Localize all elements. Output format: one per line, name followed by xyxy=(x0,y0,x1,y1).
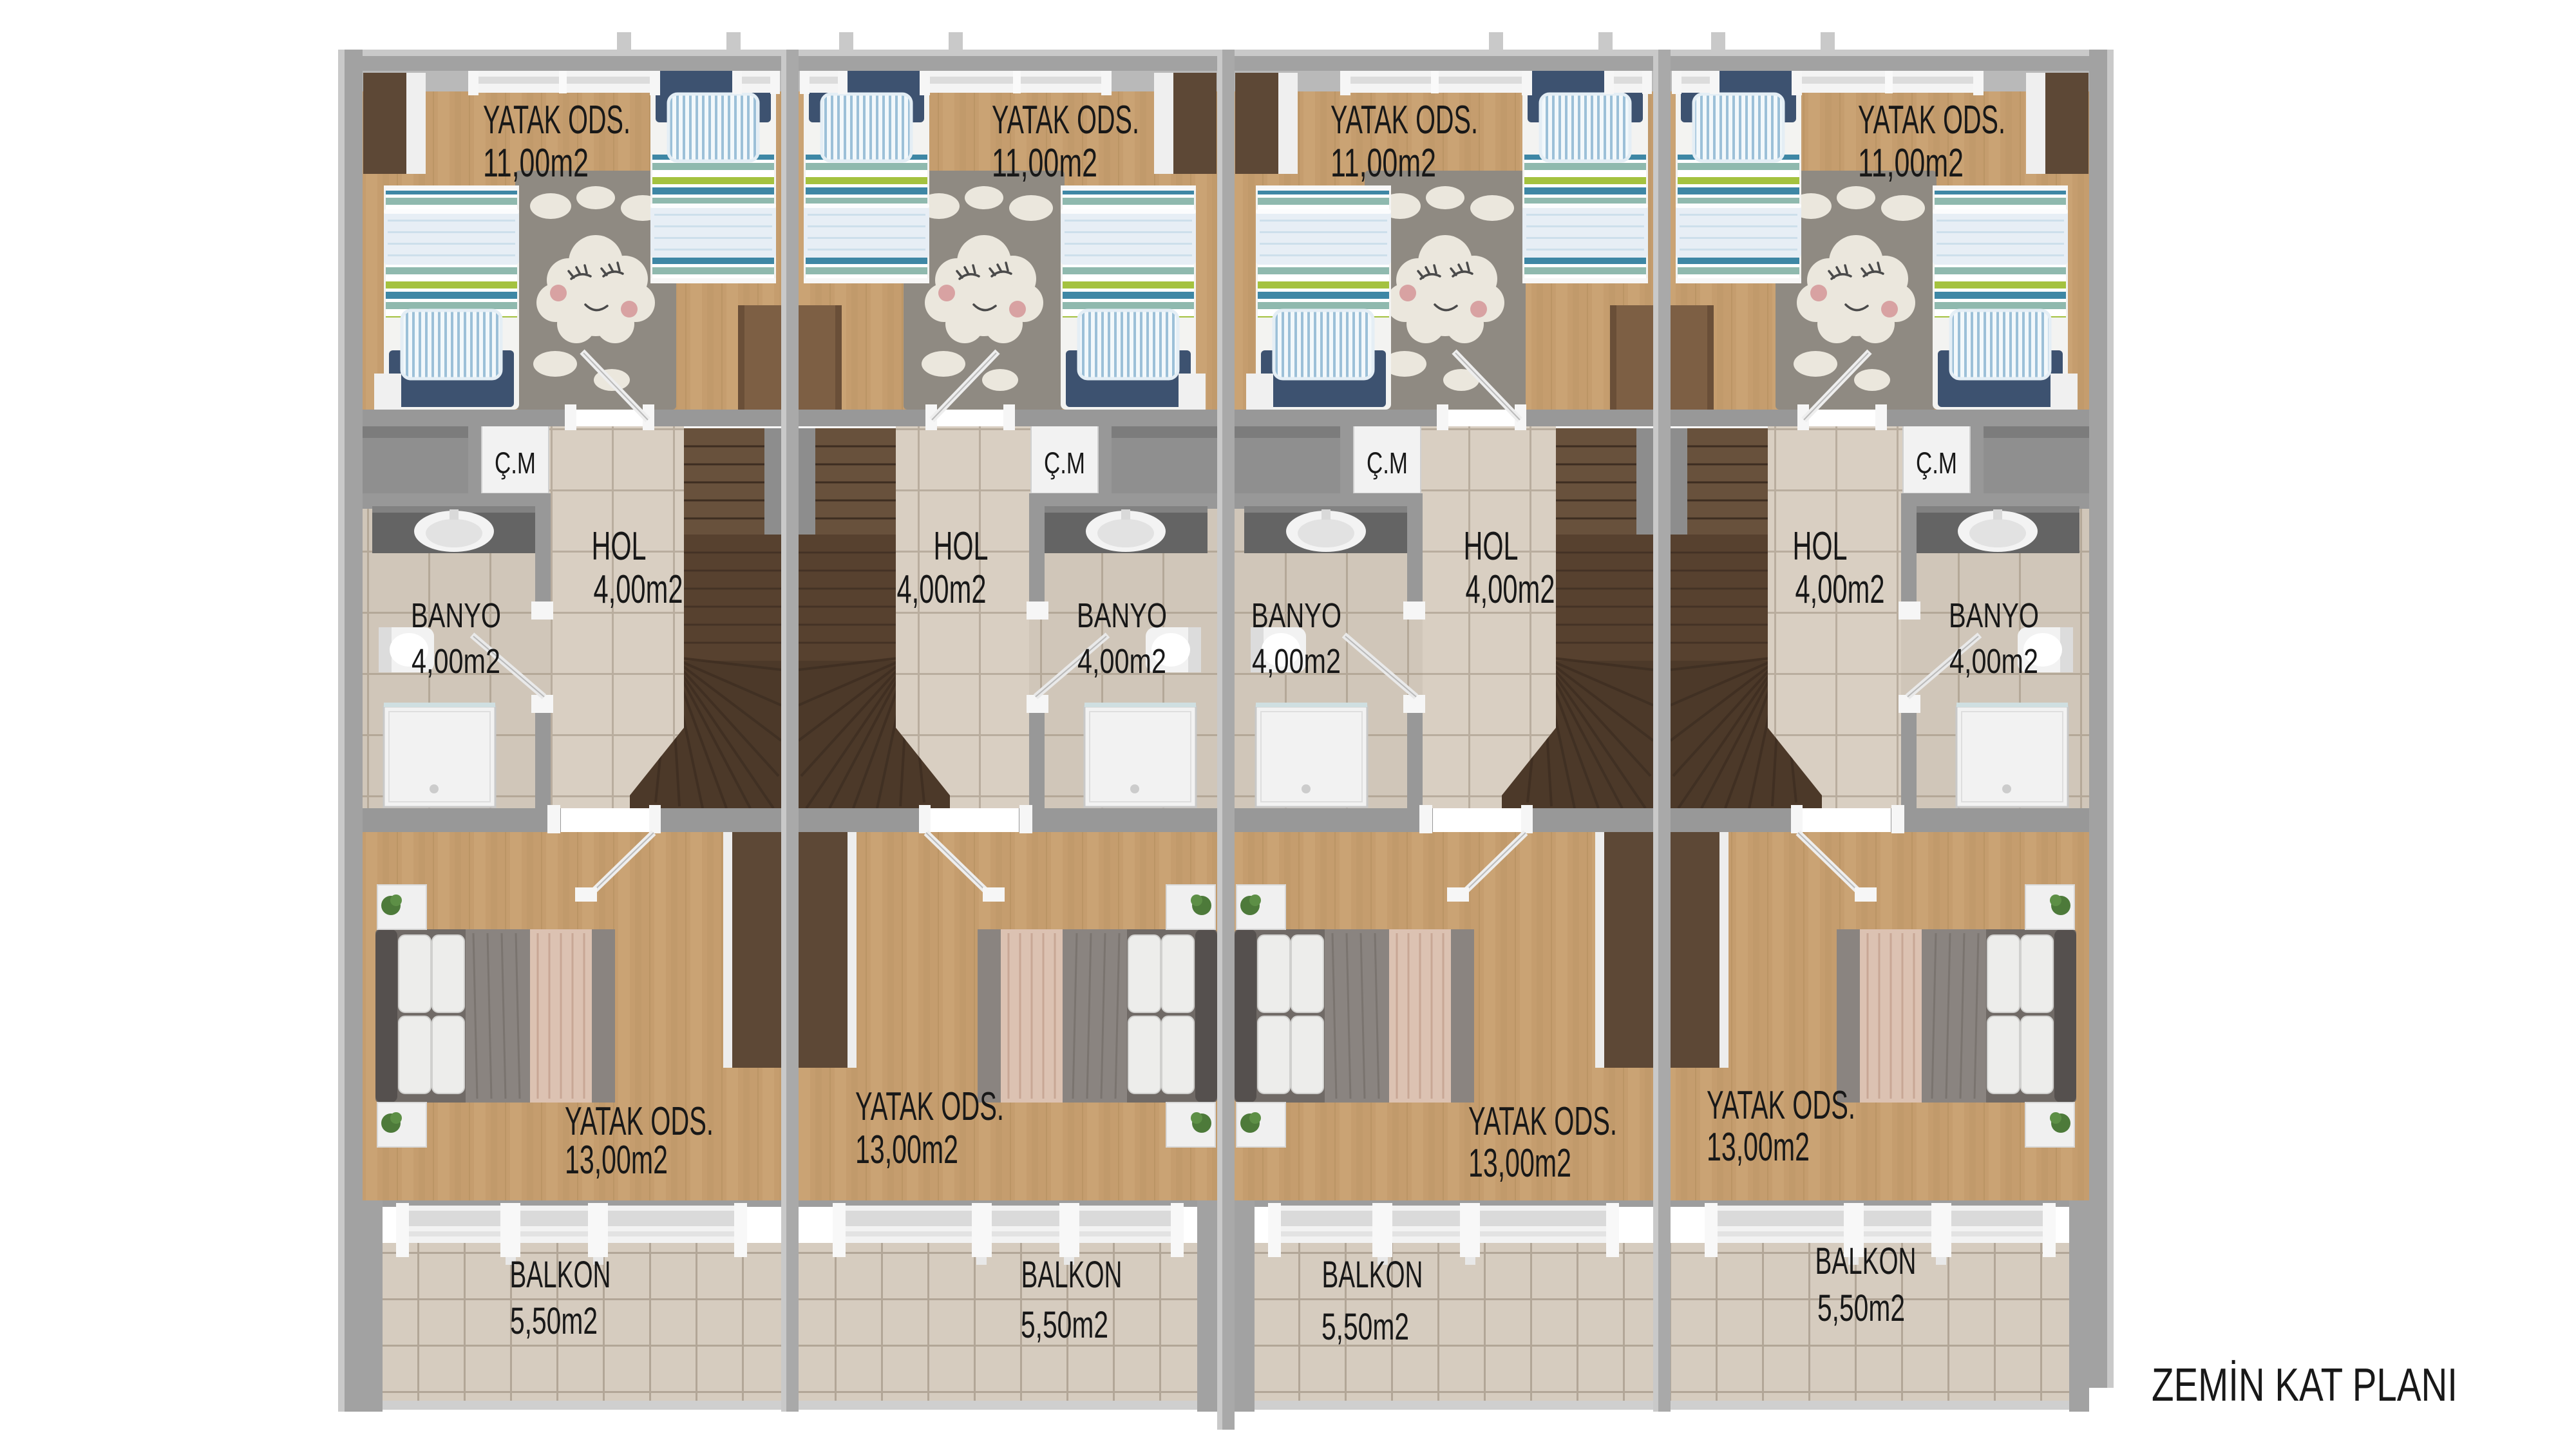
svg-text:4,00m2: 4,00m2 xyxy=(1252,642,1341,681)
svg-text:YATAK ODS.: YATAK ODS. xyxy=(992,98,1139,142)
svg-text:4,00m2: 4,00m2 xyxy=(412,642,500,681)
svg-text:BALKON: BALKON xyxy=(1322,1254,1423,1296)
svg-text:Ç.M: Ç.M xyxy=(1044,446,1085,480)
svg-text:11,00m2: 11,00m2 xyxy=(1858,141,1964,185)
svg-text:4,00m2: 4,00m2 xyxy=(897,567,987,612)
svg-text:13,00m2: 13,00m2 xyxy=(855,1128,958,1172)
svg-text:HOL: HOL xyxy=(1793,524,1848,569)
svg-text:YATAK ODS.: YATAK ODS. xyxy=(1331,98,1478,142)
svg-text:YATAK ODS.: YATAK ODS. xyxy=(1707,1083,1855,1128)
svg-text:HOL: HOL xyxy=(592,524,647,569)
svg-text:Ç.M: Ç.M xyxy=(495,446,536,480)
svg-text:4,00m2: 4,00m2 xyxy=(1077,642,1166,681)
svg-text:YATAK ODS.: YATAK ODS. xyxy=(1858,98,2005,142)
svg-text:Ç.M: Ç.M xyxy=(1367,446,1408,480)
svg-text:11,00m2: 11,00m2 xyxy=(992,141,1097,185)
svg-text:BANYO: BANYO xyxy=(1077,596,1167,635)
svg-text:4,00m2: 4,00m2 xyxy=(594,567,683,612)
svg-text:ZEMİN KAT PLANI: ZEMİN KAT PLANI xyxy=(2152,1359,2458,1411)
svg-text:11,00m2: 11,00m2 xyxy=(483,141,589,185)
svg-text:BANYO: BANYO xyxy=(1251,596,1341,635)
svg-text:HOL: HOL xyxy=(934,524,989,569)
svg-text:HOL: HOL xyxy=(1464,524,1519,569)
svg-text:YATAK ODS.: YATAK ODS. xyxy=(1468,1099,1617,1144)
svg-text:YATAK ODS.: YATAK ODS. xyxy=(483,98,630,142)
svg-text:BALKON: BALKON xyxy=(1815,1240,1917,1282)
svg-text:4,00m2: 4,00m2 xyxy=(1795,567,1885,612)
svg-text:BALKON: BALKON xyxy=(1021,1254,1122,1296)
svg-text:13,00m2: 13,00m2 xyxy=(1468,1141,1571,1186)
svg-text:BALKON: BALKON xyxy=(510,1254,611,1296)
svg-text:11,00m2: 11,00m2 xyxy=(1331,141,1436,185)
svg-text:YATAK ODS.: YATAK ODS. xyxy=(855,1084,1004,1129)
svg-text:13,00m2: 13,00m2 xyxy=(565,1138,668,1182)
svg-text:5,50m2: 5,50m2 xyxy=(1021,1304,1108,1346)
svg-text:4,00m2: 4,00m2 xyxy=(1949,642,2038,681)
svg-text:13,00m2: 13,00m2 xyxy=(1707,1125,1810,1170)
svg-text:5,50m2: 5,50m2 xyxy=(1817,1287,1905,1329)
svg-text:5,50m2: 5,50m2 xyxy=(510,1300,598,1342)
svg-text:5,50m2: 5,50m2 xyxy=(1321,1306,1409,1348)
svg-text:BANYO: BANYO xyxy=(1949,596,2039,635)
svg-text:Ç.M: Ç.M xyxy=(1916,446,1957,480)
svg-text:YATAK ODS.: YATAK ODS. xyxy=(565,1099,714,1144)
svg-text:BANYO: BANYO xyxy=(411,596,501,635)
svg-text:4,00m2: 4,00m2 xyxy=(1466,567,1555,612)
